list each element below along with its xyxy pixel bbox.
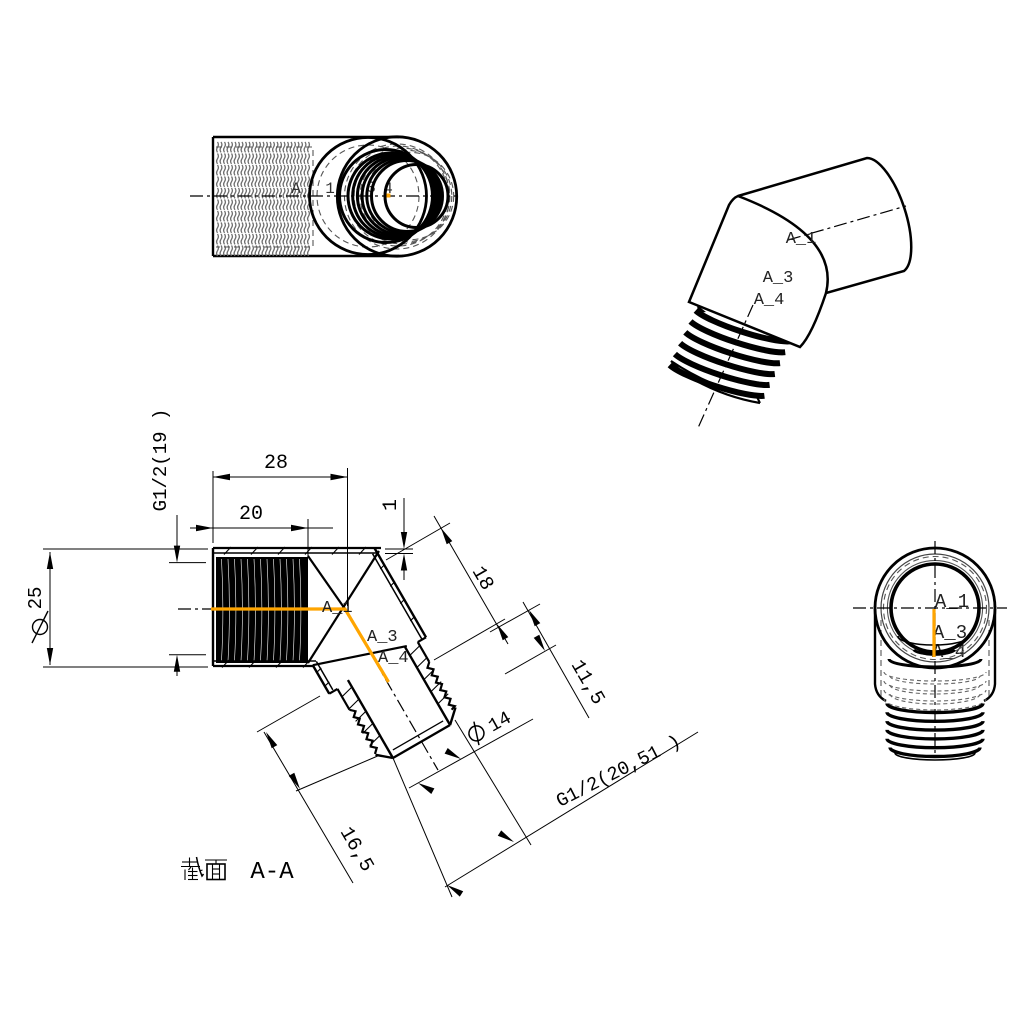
svg-text:1: 1: [325, 180, 335, 198]
svg-text:A_4: A_4: [378, 649, 409, 668]
svg-text:A_1: A_1: [322, 599, 353, 618]
svg-text:A_1: A_1: [786, 230, 817, 249]
svg-text:A_3: A_3: [367, 628, 398, 647]
svg-text:A: A: [291, 180, 301, 198]
svg-text:A_3: A_3: [763, 269, 794, 288]
svg-text:25: 25: [25, 587, 47, 610]
svg-text:A_4: A_4: [754, 291, 785, 310]
svg-text:A-A: A-A: [250, 859, 294, 886]
svg-text:20: 20: [239, 503, 263, 526]
svg-text:28: 28: [264, 452, 288, 475]
svg-text:G1/2(19 ): G1/2(19 ): [150, 409, 172, 512]
svg-text:1: 1: [380, 499, 403, 511]
svg-text:A_1: A_1: [935, 591, 969, 613]
